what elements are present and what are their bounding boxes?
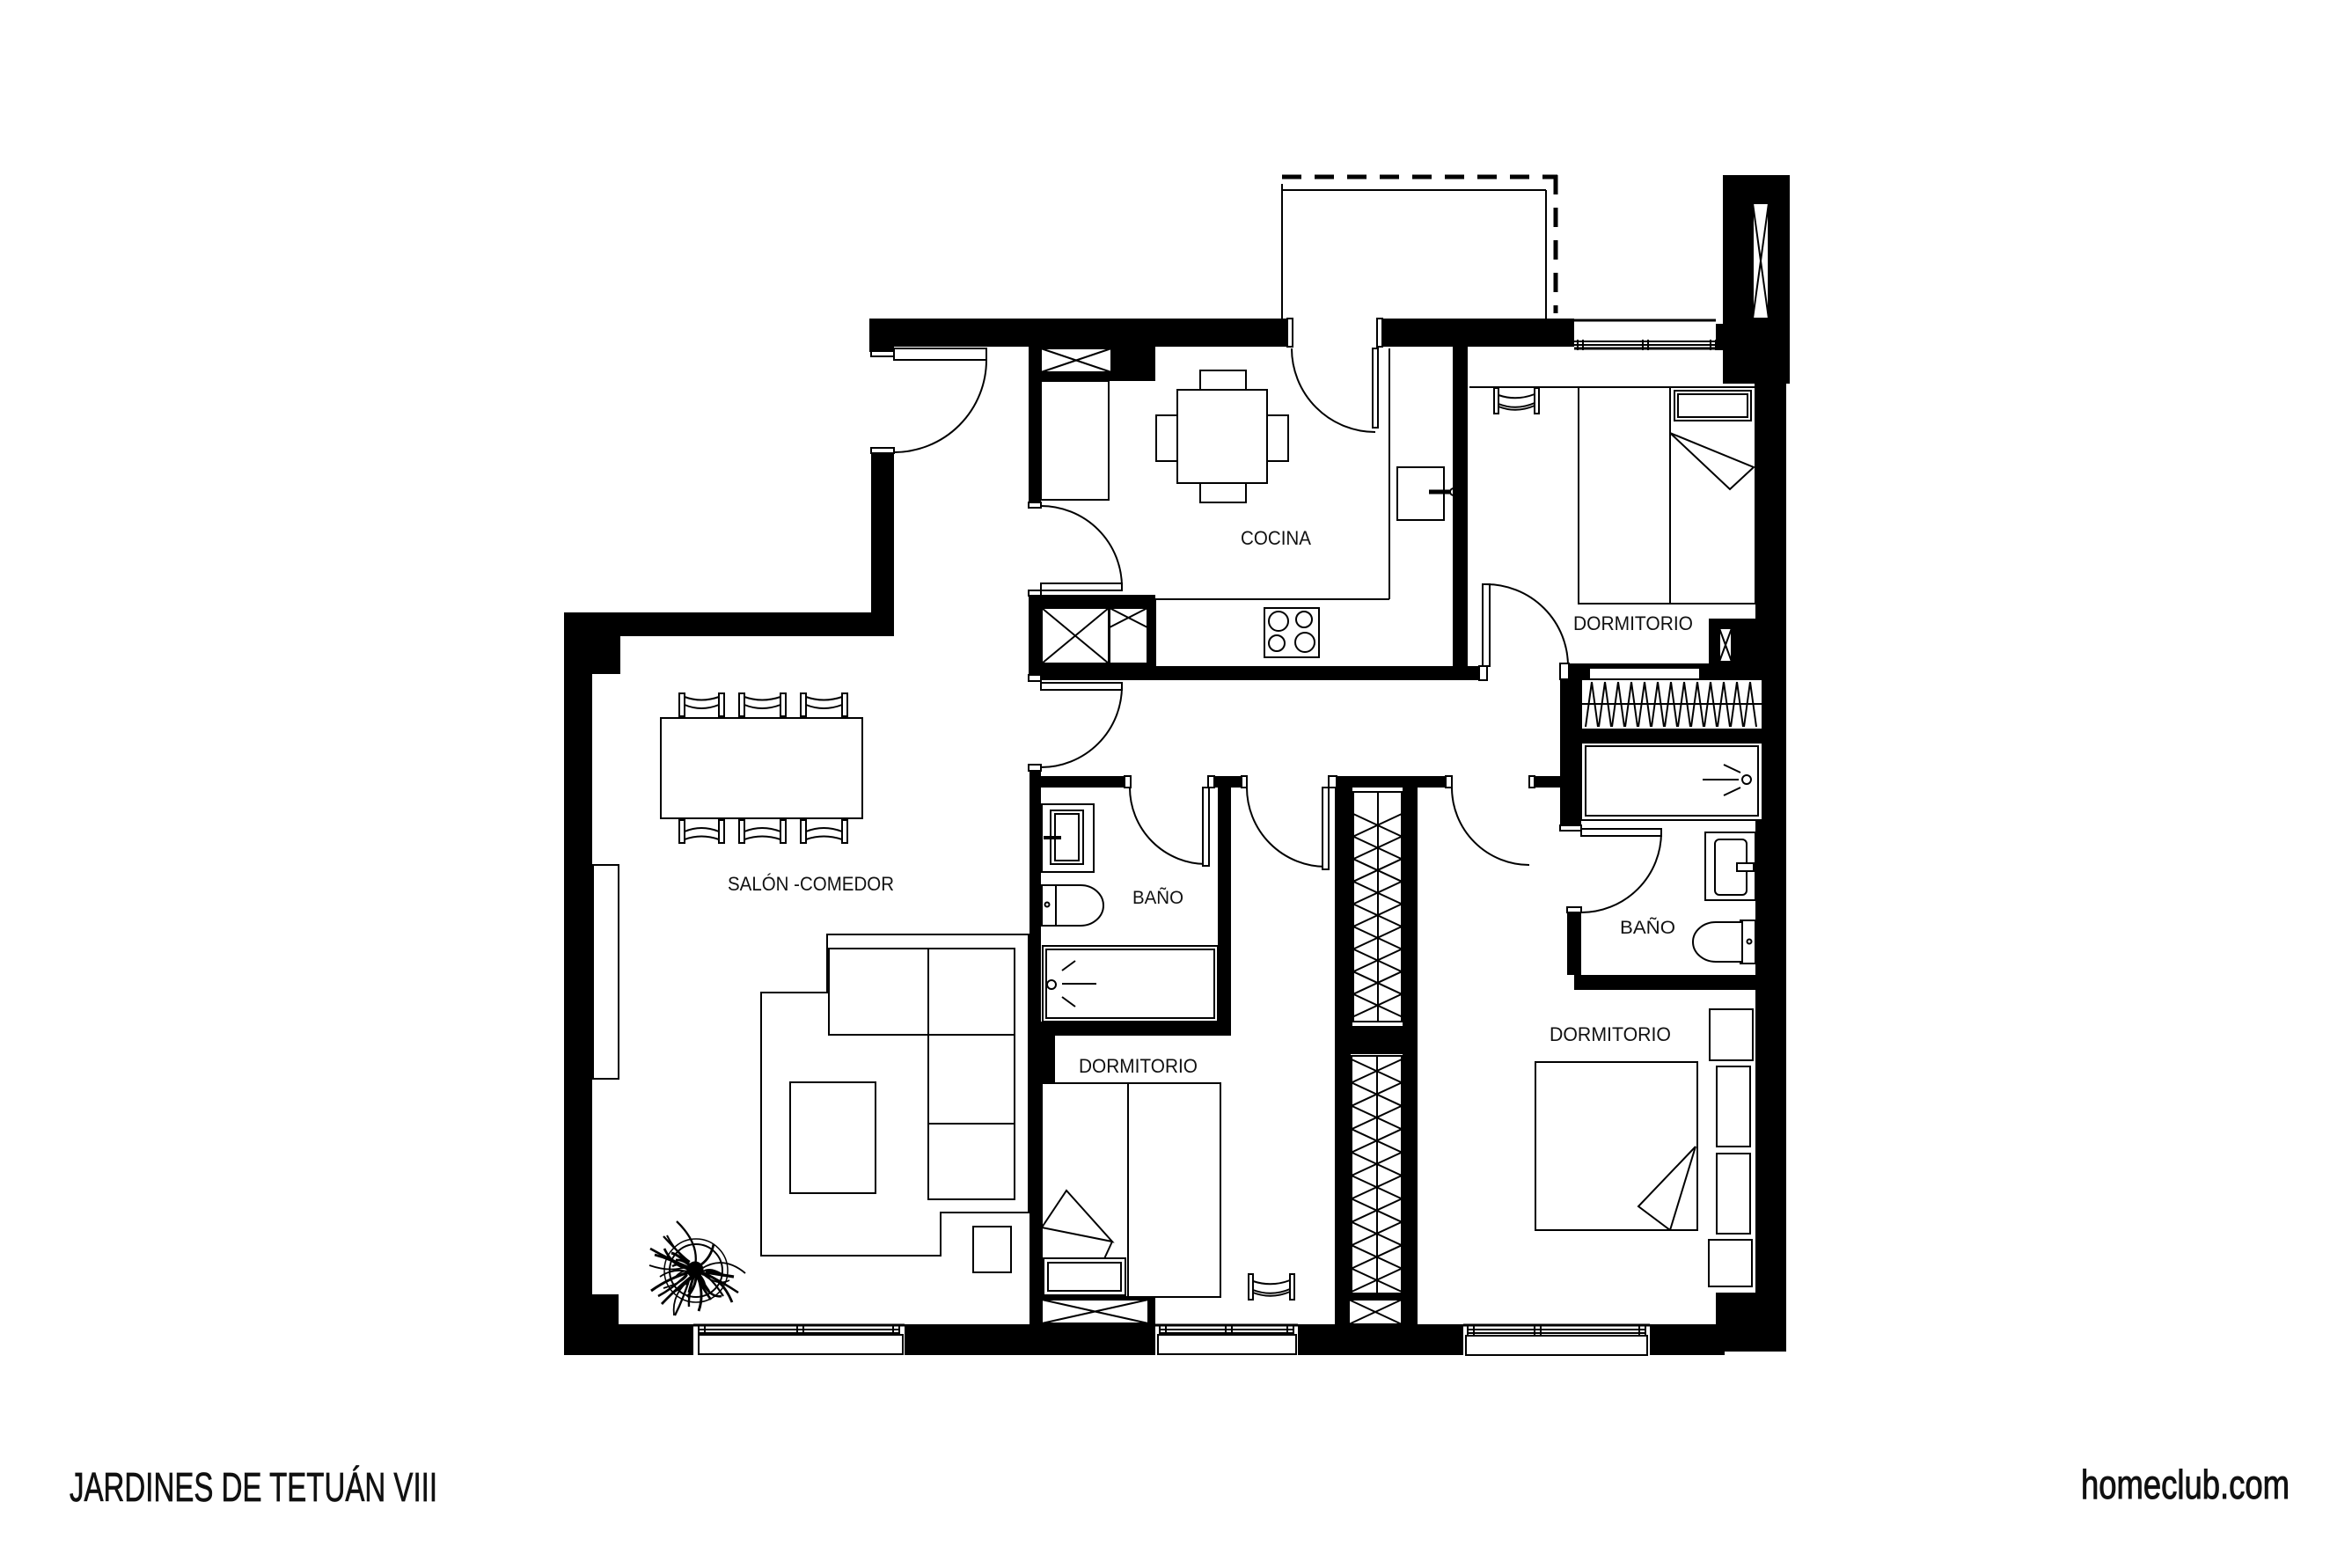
svg-text:DORMITORIO: DORMITORIO	[1079, 1055, 1198, 1077]
svg-text:homeclub.com: homeclub.com	[2081, 1462, 2290, 1507]
svg-text:JARDINES DE TETUÁN VIII: JARDINES DE TETUÁN VIII	[70, 1464, 437, 1510]
svg-text:DORMITORIO: DORMITORIO	[1550, 1023, 1671, 1045]
svg-text:SALÓN -COMEDOR: SALÓN -COMEDOR	[728, 873, 894, 895]
svg-text:BAÑO: BAÑO	[1620, 917, 1675, 938]
svg-text:COCINA: COCINA	[1241, 527, 1311, 549]
svg-text:BAÑO: BAÑO	[1132, 887, 1183, 908]
svg-text:DORMITORIO: DORMITORIO	[1573, 612, 1693, 634]
